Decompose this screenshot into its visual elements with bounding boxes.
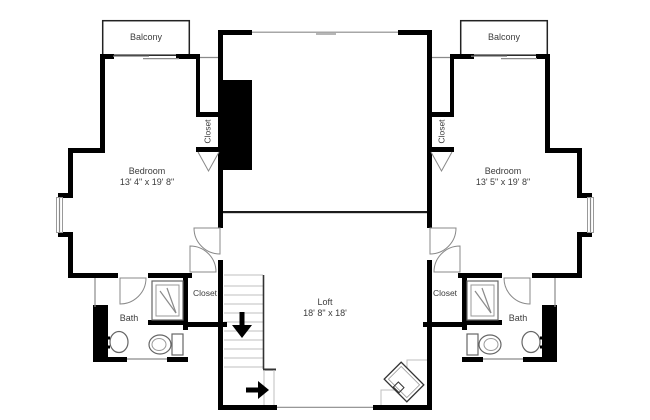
balcony-right-label: Balcony: [460, 32, 548, 43]
wall: [218, 260, 223, 410]
toilet-left: [149, 334, 183, 355]
fireplace: [381, 360, 427, 405]
bedroom-right-label: Bedroom 13' 5" x 19' 8": [443, 166, 563, 188]
wall: [218, 30, 252, 35]
sliding-door-left: [113, 56, 179, 58]
left-wing: [57, 21, 228, 362]
door-swing: [504, 278, 530, 304]
wall: [218, 30, 223, 228]
wall: [373, 405, 432, 410]
closet-lower-left-label: Closet: [181, 288, 229, 299]
loft-label: Loft 18' 8" x 18': [275, 297, 375, 319]
bay-window-right: [577, 193, 594, 237]
toilet-right: [467, 334, 501, 355]
room-name: Bedroom: [443, 166, 563, 177]
floor-plan: Balcony Balcony Bedroom 13' 4" x 19' 8" …: [0, 0, 650, 420]
stairs-entry-arrow-icon: [246, 381, 269, 399]
room-name: Loft: [275, 297, 375, 308]
center-block: [218, 30, 432, 410]
door-swing: [120, 278, 146, 304]
sink-left: [107, 332, 128, 353]
sliding-door-right: [471, 56, 537, 58]
room-dimensions: 13' 4" x 19' 8": [87, 177, 207, 188]
wall: [427, 30, 432, 228]
sink-right: [522, 332, 543, 353]
closet-lower-right-label: Closet: [421, 288, 469, 299]
closet-upper-left-label: Closet: [203, 108, 214, 156]
balcony-left-label: Balcony: [102, 32, 190, 43]
staircase: [224, 275, 276, 405]
bay-window-left: [57, 193, 74, 237]
wall: [427, 260, 432, 410]
room-dimensions: 18' 8" x 18': [275, 308, 375, 319]
wall: [218, 405, 277, 410]
chimney: [223, 80, 252, 170]
bath-left-label: Bath: [101, 313, 157, 324]
room-name: Bedroom: [87, 166, 207, 177]
right-wing: [423, 21, 594, 362]
bath-right-label: Bath: [490, 313, 546, 324]
floor-plan-drawing: [0, 0, 650, 420]
loft-railing: [223, 211, 427, 213]
closet-upper-right-label: Closet: [437, 108, 448, 156]
stairs-down-arrow-icon: [232, 312, 252, 338]
room-dimensions: 13' 5" x 19' 8": [443, 177, 563, 188]
wall: [398, 30, 432, 35]
bedroom-left-label: Bedroom 13' 4" x 19' 8": [87, 166, 207, 188]
